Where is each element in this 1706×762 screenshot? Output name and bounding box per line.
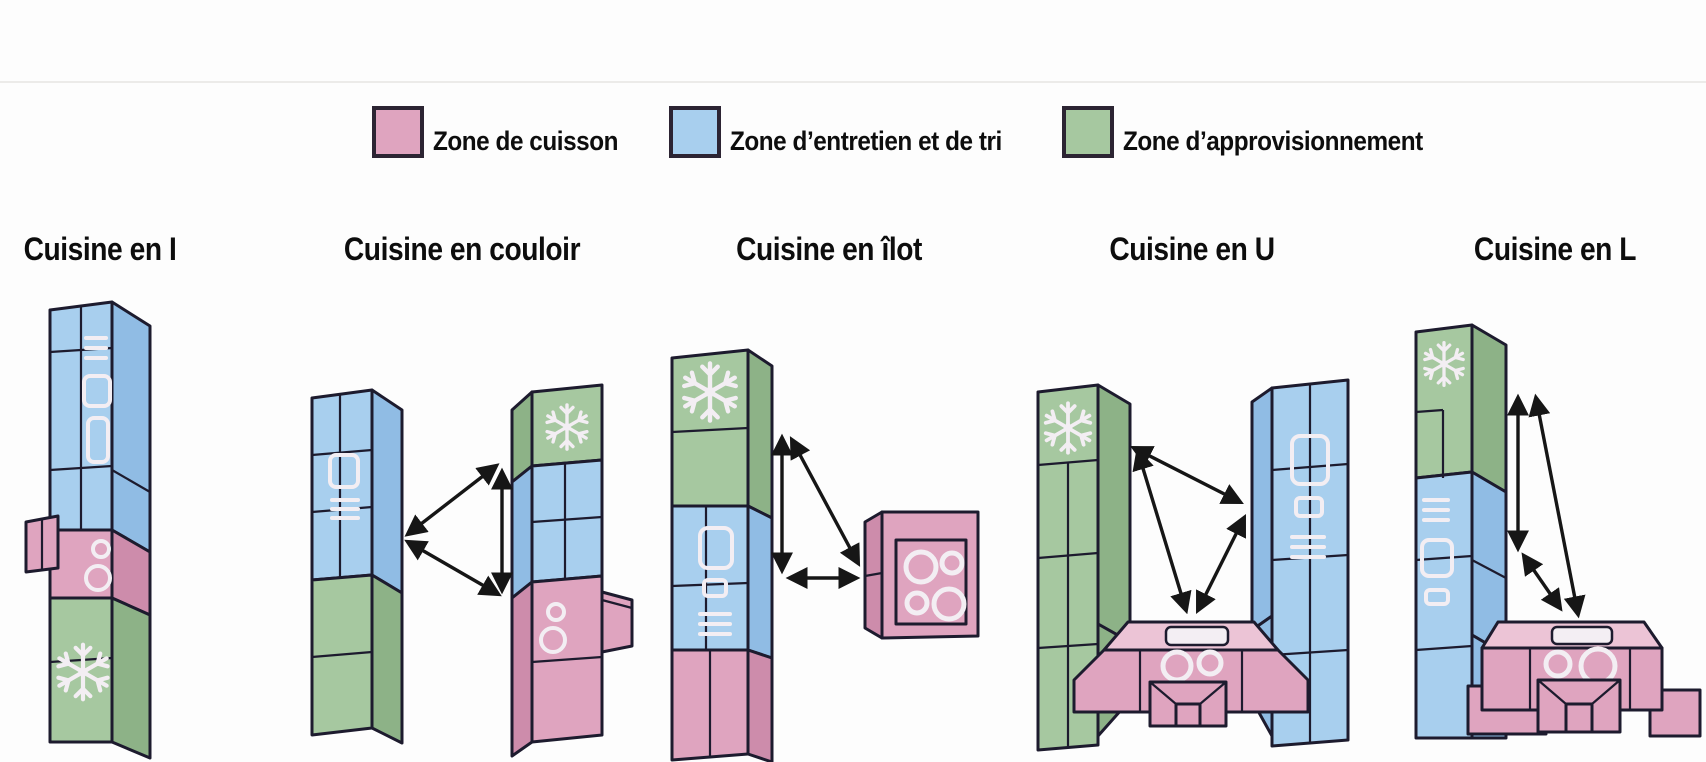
oven-hood [1538,680,1620,732]
work-triangle-arrows [1134,448,1244,610]
oven-hood [1150,682,1226,726]
work-triangle-arrows [408,466,502,594]
diagrams-canvas [0,0,1706,762]
island-block [865,512,978,638]
diagram-cuisine-en-l [1416,325,1700,738]
work-triangle-arrows [1518,398,1578,614]
sink-panel [1166,627,1228,645]
work-triangle-arrows [782,438,858,578]
diagram-cuisine-en-couloir [312,385,632,756]
diagram-cuisine-en-ilot [672,350,978,762]
kitchen-layouts-infographic: Zone de cuisson Zone d’entretien et de t… [0,0,1706,762]
sink-panel [1552,627,1612,644]
diagram-cuisine-en-u [1038,380,1348,750]
diagram-cuisine-en-i [26,302,150,758]
